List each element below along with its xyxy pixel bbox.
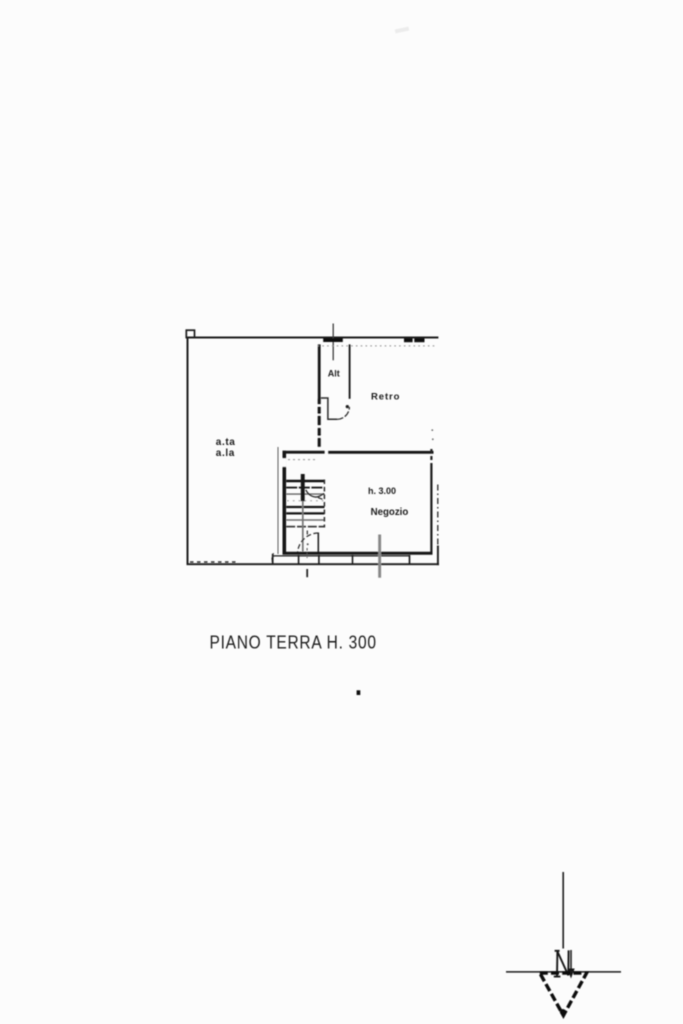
svg-text:a.la: a.la <box>216 448 235 459</box>
svg-text:Negozio: Negozio <box>371 507 409 518</box>
svg-text:PIANO TERRA H. 300: PIANO TERRA H. 300 <box>210 632 377 652</box>
svg-text:h. 3.00: h. 3.00 <box>368 486 396 496</box>
svg-text:a.ta: a.ta <box>216 437 236 448</box>
svg-text:Retro: Retro <box>371 392 400 403</box>
svg-text:Alt: Alt <box>328 369 340 379</box>
